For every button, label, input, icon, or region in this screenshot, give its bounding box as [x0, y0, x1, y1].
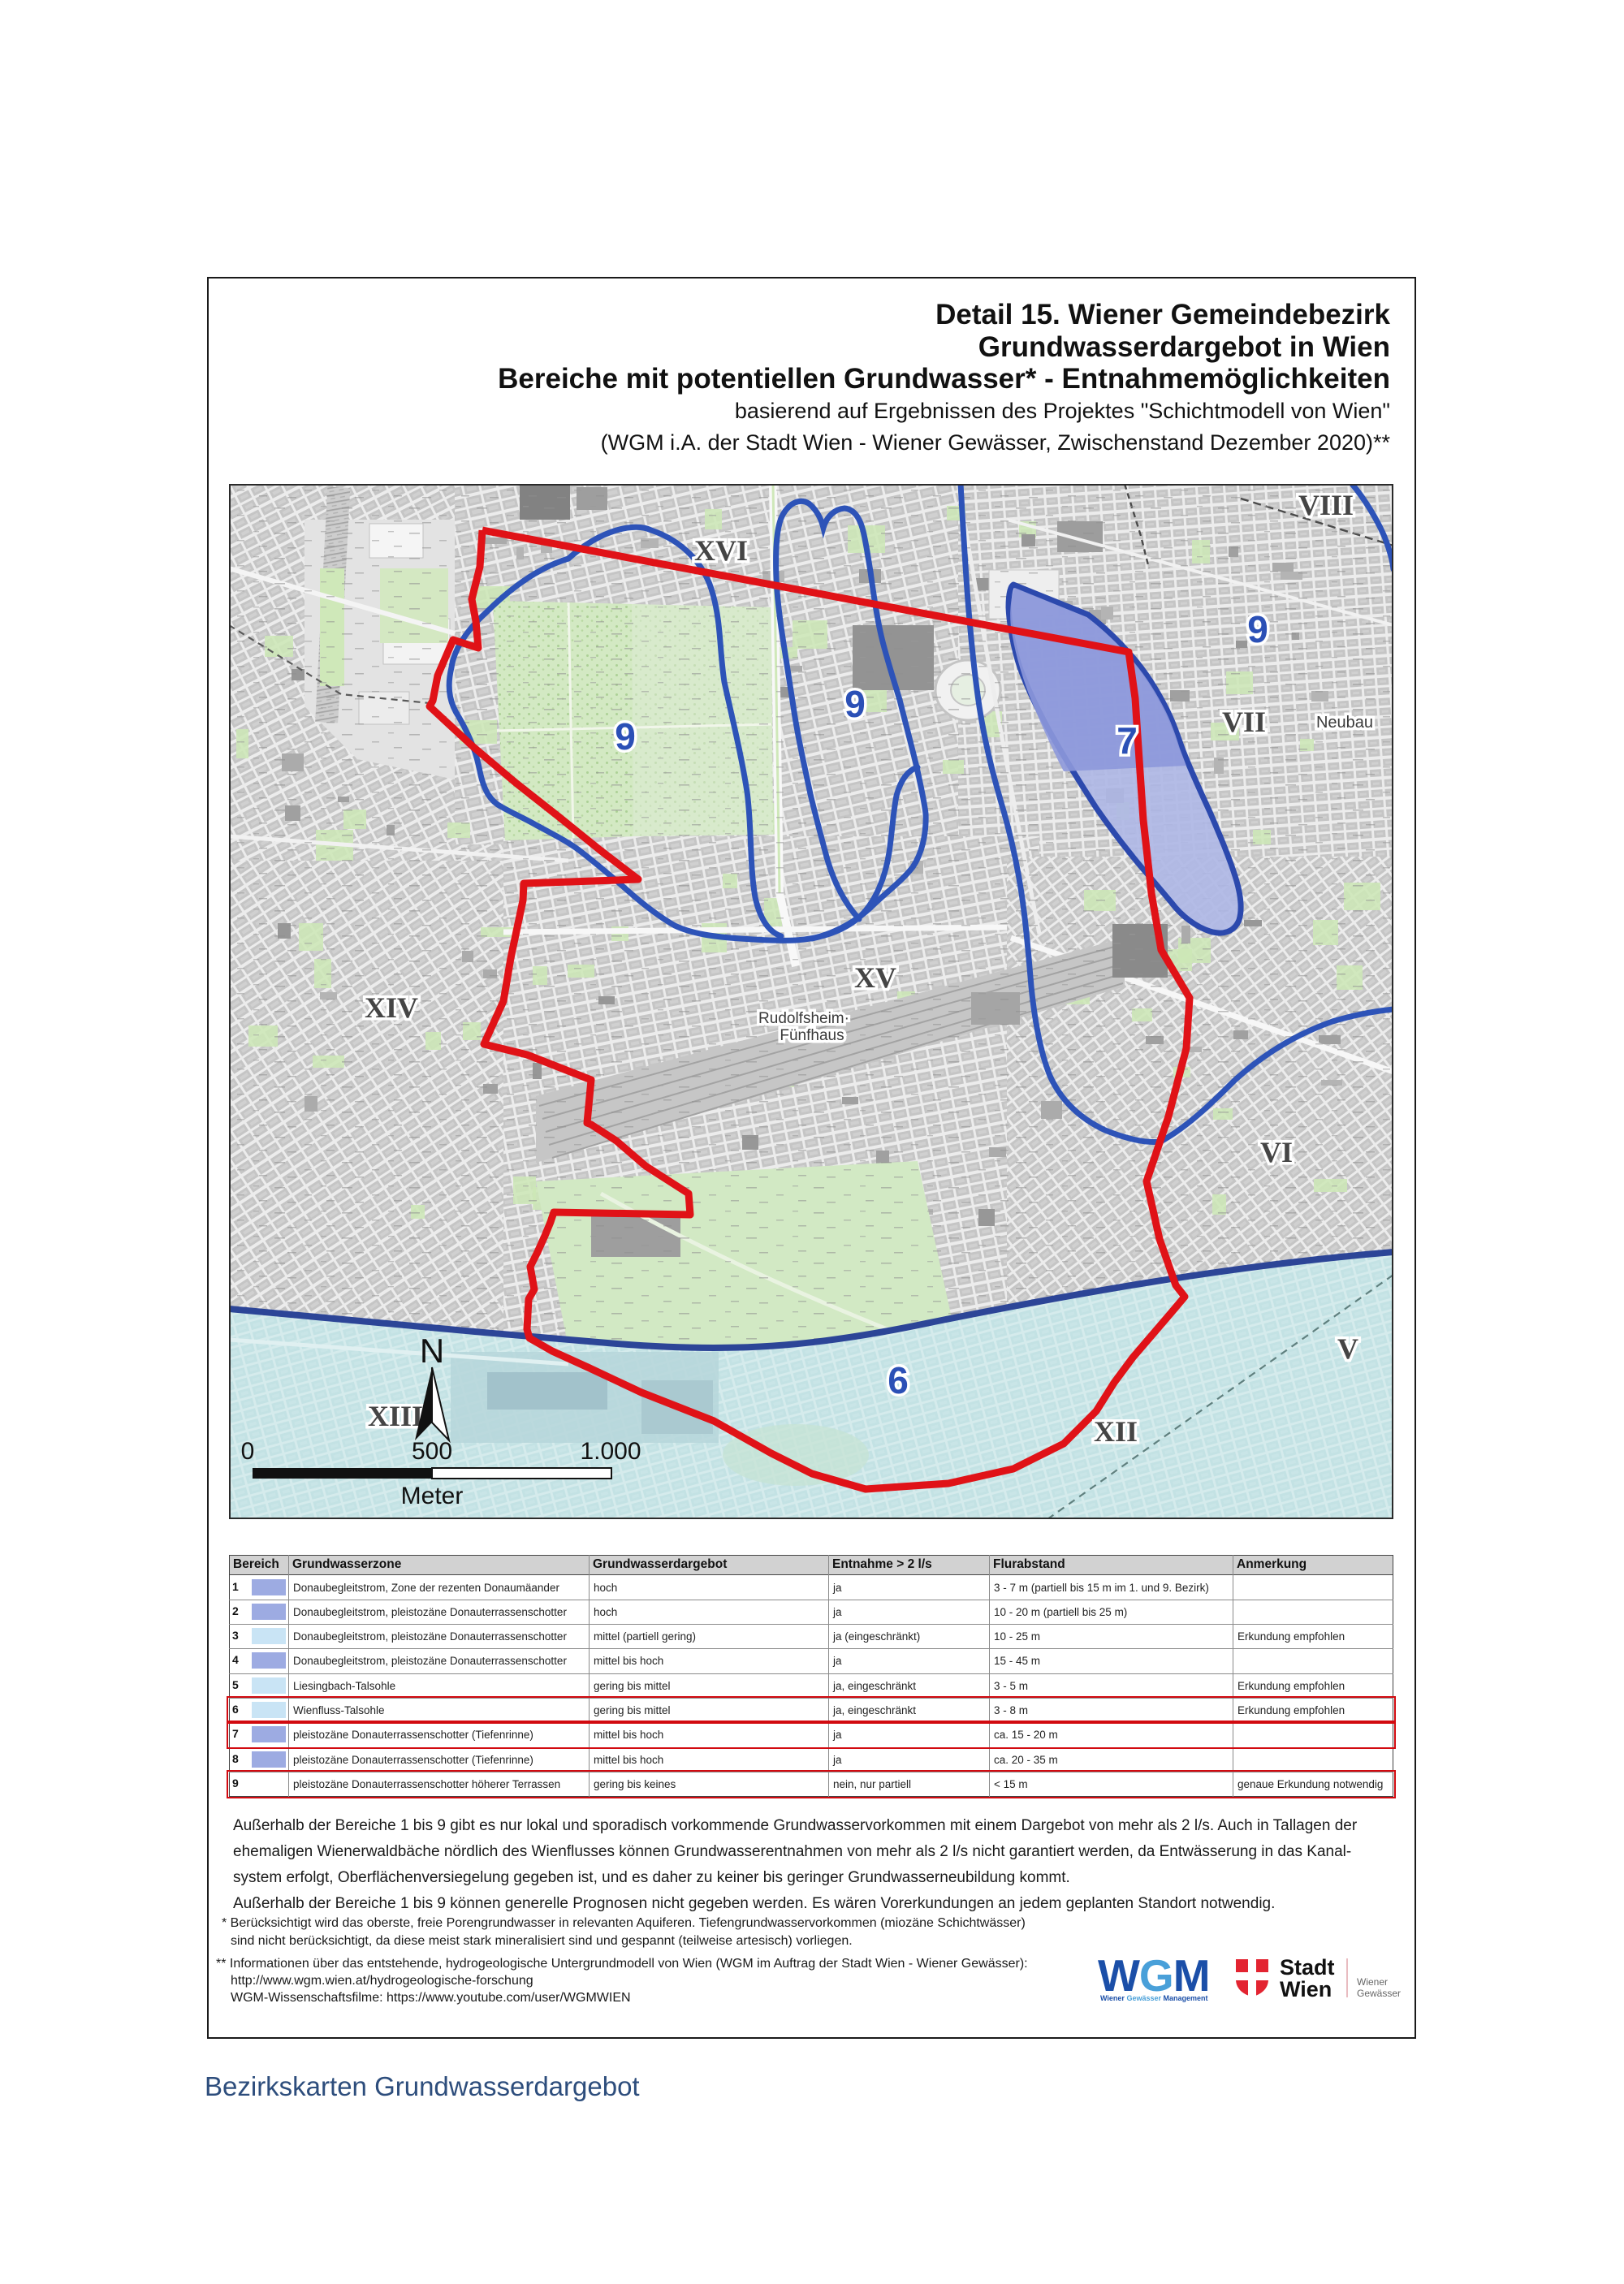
svg-text:9: 9 [1247, 608, 1268, 650]
svg-text:XIV: XIV [365, 991, 418, 1024]
svg-text:XII: XII [1094, 1415, 1138, 1448]
svg-text:1.000: 1.000 [580, 1438, 641, 1465]
svg-text:0: 0 [241, 1438, 255, 1465]
svg-text:Fünfhaus: Fünfhaus [780, 1027, 844, 1044]
svg-text:7: 7 [1116, 719, 1138, 762]
svg-text:VII: VII [1222, 706, 1266, 738]
svg-text:VI: VI [1260, 1136, 1293, 1168]
svg-text:9: 9 [615, 715, 636, 758]
svg-text:Rudolfsheim·: Rudolfsheim· [758, 1010, 849, 1027]
svg-text:9: 9 [844, 683, 866, 725]
svg-text:N: N [420, 1332, 444, 1370]
svg-text:Meter: Meter [401, 1483, 464, 1509]
svg-text:500: 500 [412, 1438, 452, 1465]
svg-text:6: 6 [888, 1359, 909, 1401]
svg-text:XIII: XIII [368, 1400, 423, 1432]
svg-text:XVI: XVI [694, 534, 748, 567]
svg-text:V: V [1337, 1332, 1358, 1365]
svg-text:Neubau: Neubau [1316, 714, 1373, 732]
svg-text:XV: XV [854, 961, 896, 994]
svg-text:VIII: VIII [1298, 489, 1354, 521]
